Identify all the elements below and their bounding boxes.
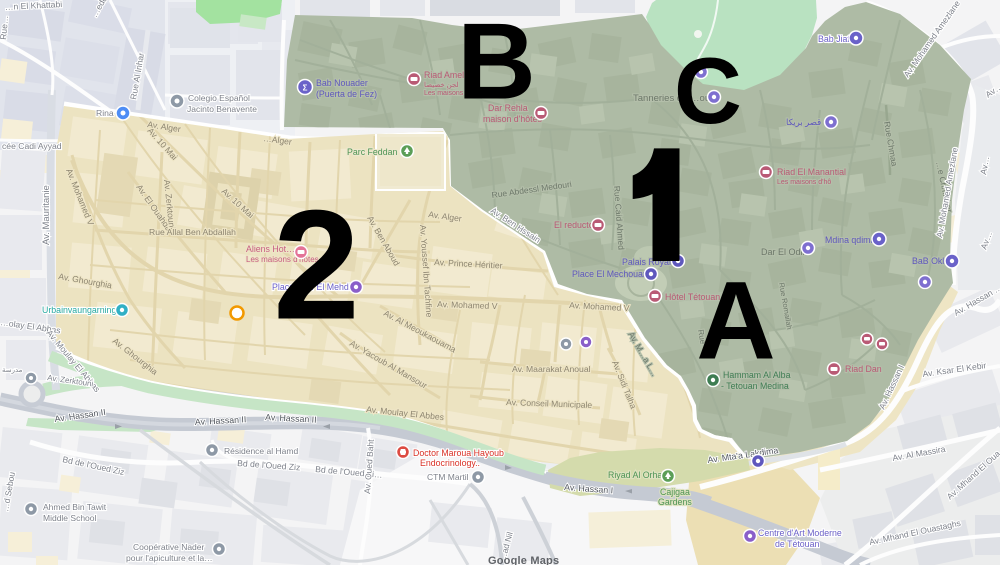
svg-text:cée Cadi Ayyad: cée Cadi Ayyad [2, 141, 62, 151]
svg-text:Gardens: Gardens [658, 497, 692, 507]
svg-text:قصر بريكا: قصر بريكا [786, 117, 821, 128]
svg-text:CTM Martil: CTM Martil [427, 472, 469, 482]
svg-text:Ahmed Bin Tawit: Ahmed Bin Tawit [43, 502, 107, 512]
svg-text:Av. Mauritanie: Av. Mauritanie [41, 185, 52, 245]
svg-text:El reducto: El reducto [554, 220, 594, 230]
svg-text:B: B [457, 1, 536, 123]
svg-text:C: C [674, 38, 742, 143]
svg-text:Bab Jiaf: Bab Jiaf [818, 34, 850, 44]
svg-text:Av. Maarakat Anoual: Av. Maarakat Anoual [512, 364, 591, 374]
svg-text:Riad El Manantial: Riad El Manantial [777, 167, 846, 177]
svg-text:Centre d'Art Moderne: Centre d'Art Moderne [758, 528, 842, 538]
svg-text:Résidence al Hamd: Résidence al Hamd [224, 446, 298, 456]
svg-text:Place El Mechouar: Place El Mechouar [572, 269, 646, 279]
svg-text:Σ: Σ [303, 84, 308, 93]
svg-text:BaB Okla: BaB Okla [912, 256, 949, 266]
svg-text:pour l'apiculture et la…: pour l'apiculture et la… [126, 553, 213, 563]
svg-text:Av. Mohamed V: Av. Mohamed V [437, 299, 498, 311]
svg-text:Bab Nouader: Bab Nouader [316, 78, 368, 88]
svg-text:Jacinto Benavente: Jacinto Benavente [187, 104, 257, 114]
svg-text:de Tétouan: de Tétouan [775, 539, 819, 549]
svg-text:Riad Dan: Riad Dan [845, 364, 882, 374]
svg-text:Urbainvaungarning: Urbainvaungarning [42, 305, 116, 315]
svg-text:Cajigaa: Cajigaa [660, 487, 690, 497]
svg-text:Endocrinology..: Endocrinology.. [420, 458, 480, 468]
svg-text:لجن خصيصا: لجن خصيصا [424, 81, 459, 89]
svg-text:- Tetouan Medina: - Tetouan Medina [721, 381, 789, 391]
svg-text:Doctor Maroua Hayoub: Doctor Maroua Hayoub [413, 448, 504, 458]
svg-text:Les maisons d'hô: Les maisons d'hô [777, 179, 831, 186]
svg-text:A: A [696, 260, 775, 383]
svg-text:Parc Feddan: Parc Feddan [347, 147, 397, 157]
svg-text:Colegio Español: Colegio Español [188, 93, 250, 103]
svg-text:2: 2 [273, 179, 360, 353]
svg-text:(Puerta de Fez): (Puerta de Fez) [316, 89, 377, 99]
svg-text:مدرسة: مدرسة [2, 367, 23, 374]
svg-text:Dar El Odii: Dar El Odii [761, 247, 805, 257]
svg-text:Rue Allal Ben Abdallah: Rue Allal Ben Abdallah [149, 227, 236, 237]
svg-text:Riyad Al Orhak: Riyad Al Orhak [608, 470, 667, 480]
svg-text:Coopérative Nader: Coopérative Nader [133, 542, 205, 552]
svg-text:Google Maps: Google Maps [488, 555, 559, 565]
svg-text:Middle School: Middle School [43, 513, 97, 523]
svg-text:Mdina qdima: Mdina qdima [825, 235, 875, 245]
svg-text:Rina: Rina [96, 108, 114, 118]
